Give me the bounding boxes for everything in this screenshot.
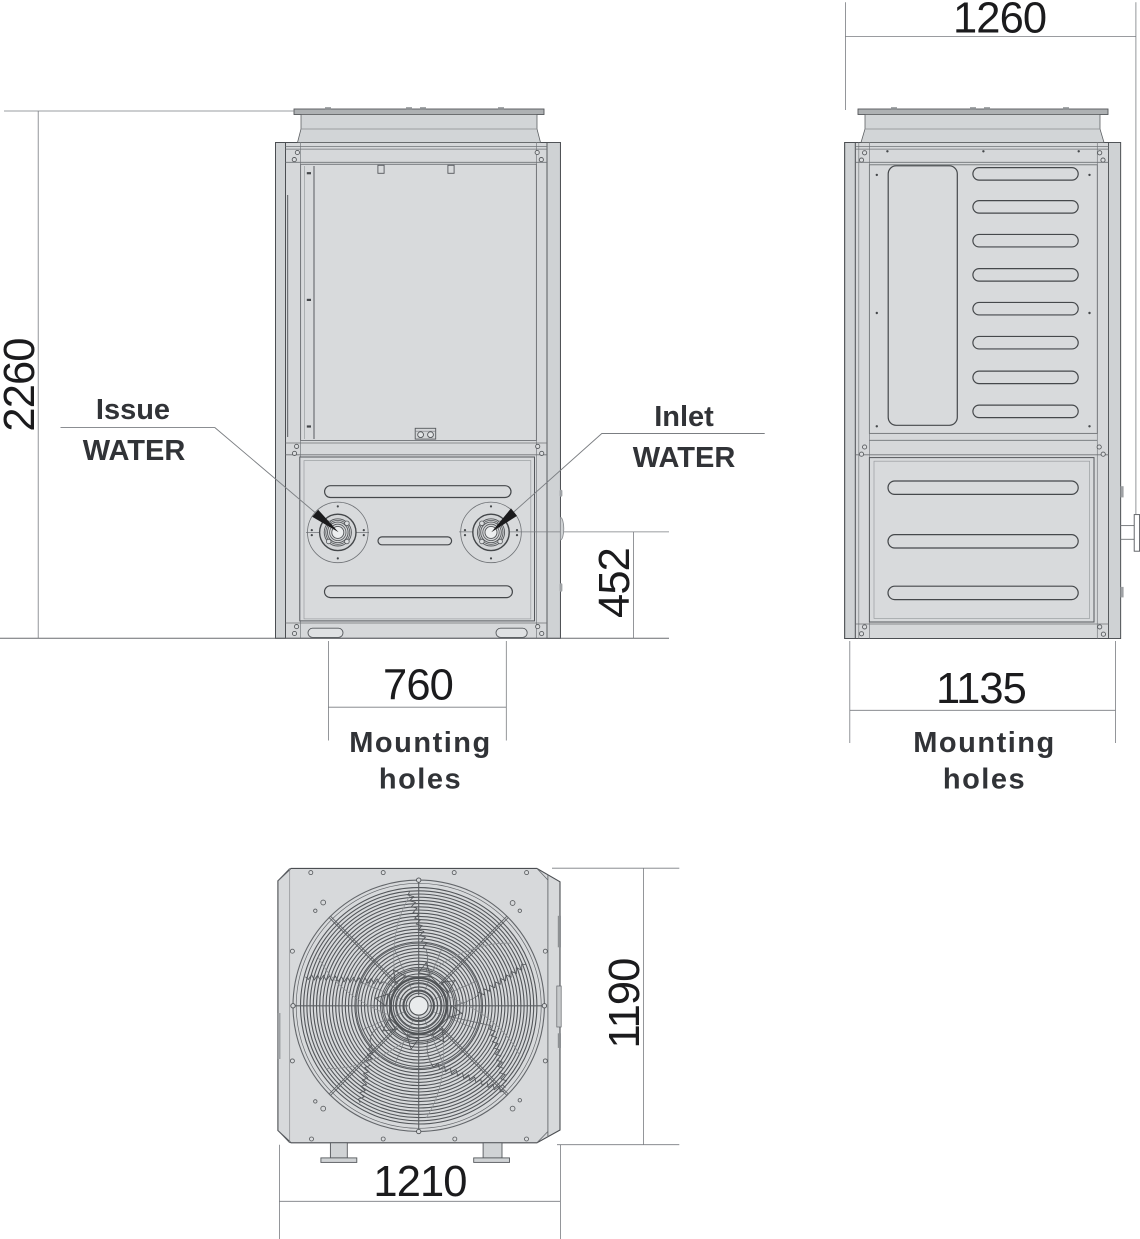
- svg-text:1210: 1210: [373, 1158, 466, 1206]
- svg-text:WATER: WATER: [83, 435, 186, 467]
- svg-text:Issue: Issue: [96, 394, 170, 426]
- svg-text:WATER: WATER: [633, 442, 736, 474]
- svg-text:holes: holes: [379, 764, 462, 796]
- svg-text:holes: holes: [943, 764, 1026, 796]
- svg-text:Inlet: Inlet: [654, 401, 714, 433]
- svg-text:1190: 1190: [601, 959, 649, 1049]
- svg-text:1135: 1135: [936, 665, 1026, 713]
- svg-text:Mounting: Mounting: [349, 727, 491, 759]
- svg-text:452: 452: [591, 548, 639, 618]
- svg-text:Mounting: Mounting: [913, 727, 1055, 759]
- svg-text:760: 760: [383, 662, 453, 710]
- svg-text:1260: 1260: [953, 0, 1046, 43]
- svg-text:2260: 2260: [0, 338, 44, 431]
